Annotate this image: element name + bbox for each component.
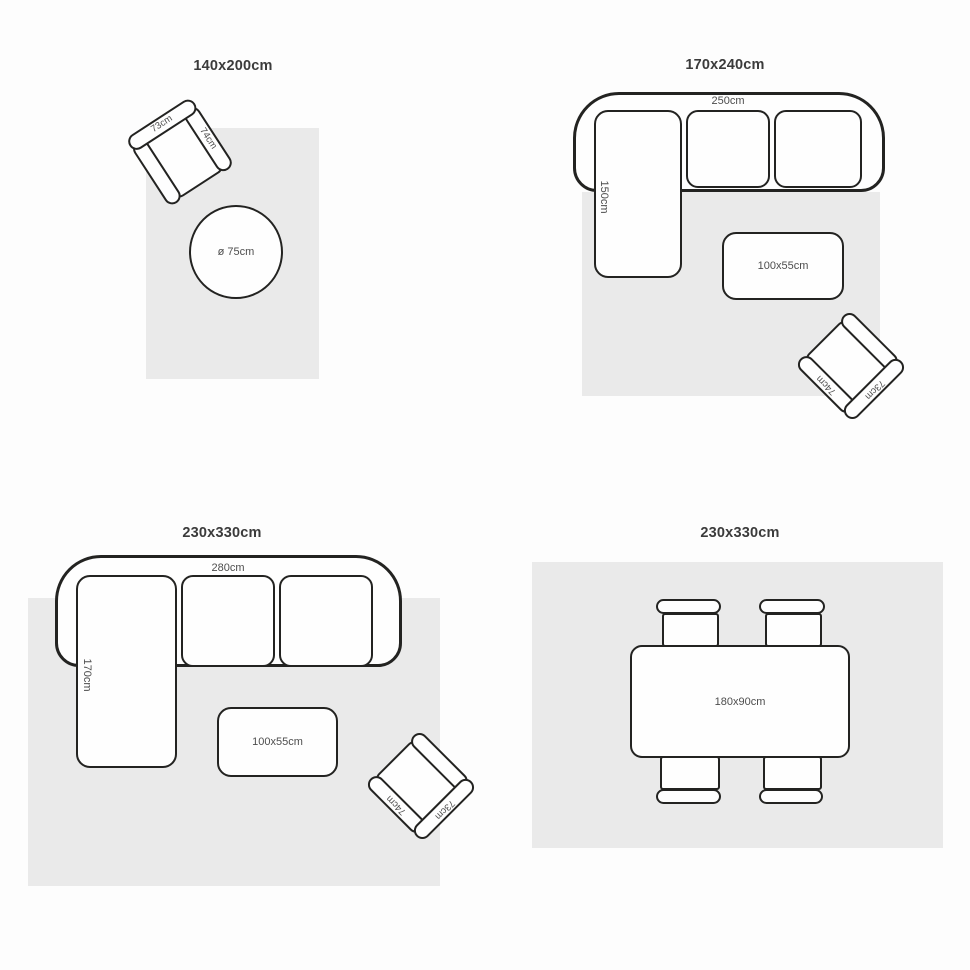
sofa-depth-dimension: 150cm	[598, 180, 610, 213]
sofa-width-dimension: 250cm	[711, 95, 744, 107]
dining-chair-seat	[763, 756, 822, 790]
rug-size-guide-diagram: 140x200cm 73cm 74cm ø 75cm 170x240cm 250…	[0, 0, 970, 970]
sofa-width-dimension: 280cm	[211, 562, 244, 574]
coffee-table: 100x55cm	[217, 707, 338, 777]
dining-chair-backrest	[759, 789, 823, 804]
coffee-table-dimension: 100x55cm	[758, 260, 809, 272]
coffee-table: 100x55cm	[722, 232, 844, 300]
dining-chair-seat	[662, 613, 719, 647]
panel2-title: 170x240cm	[615, 57, 835, 73]
dining-chair-seat	[765, 613, 822, 647]
dining-chair-backrest	[656, 789, 721, 804]
round-table-dimension: ø 75cm	[218, 246, 255, 258]
sofa-seat	[686, 110, 770, 188]
dining-table-dimension: 180x90cm	[715, 696, 766, 708]
sofa-seat	[181, 575, 275, 667]
round-table: ø 75cm	[189, 205, 283, 299]
panel1-title: 140x200cm	[123, 58, 343, 74]
sofa-seat	[279, 575, 373, 667]
sofa-seat	[774, 110, 862, 188]
coffee-table-dimension: 100x55cm	[252, 736, 303, 748]
panel4-title: 230x330cm	[630, 525, 850, 541]
dining-chair-backrest	[656, 599, 721, 614]
panel3-title: 230x330cm	[112, 525, 332, 541]
dining-table: 180x90cm	[630, 645, 850, 758]
dining-chair-seat	[660, 756, 720, 790]
sofa-depth-dimension: 170cm	[81, 658, 93, 691]
dining-chair-backrest	[759, 599, 825, 614]
